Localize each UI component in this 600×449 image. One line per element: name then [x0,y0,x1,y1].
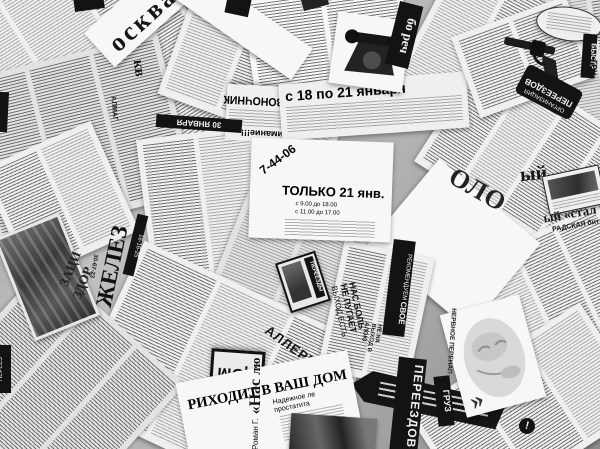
oval-ad-lines [546,12,592,36]
lyu-text: лю [248,358,263,375]
exclamation-text: ! [524,420,531,433]
roman-text: Роман Г. [251,418,260,449]
novel-title-vertical: Роман Г. «Нас лю [248,392,265,449]
tools-photo [289,413,378,449]
fine-print-lines [284,219,375,238]
only21-scrap: 7-44-06 ТОЛЬКО 21 янв. с 9.00 до 18.00 с… [248,138,393,243]
newspaper-collage-photo: осква кв АЛМАГ Внимание!!! ПОЗВОНОЧНИК 3… [0,0,600,449]
only21-text: ТОЛЬКО 21 янв. [282,183,385,202]
gru-text: ГРУ [588,60,597,75]
pereez-text: ПЕРЕЕЗ [0,357,4,381]
pereez-edge-strip: ПЕРЕЕЗ [0,345,11,393]
schedule-line1: с 9.00 до 18.00 [295,201,337,208]
schedule-line2: с 11.00 до 17.00 [295,209,340,217]
strip-date-text: 30 ЯНВАРЯ [176,117,221,129]
phone-744-text: 7-44-06 [257,142,299,178]
nas-text: «Нас [247,379,264,415]
kv-vertical-text: кв [129,59,147,78]
